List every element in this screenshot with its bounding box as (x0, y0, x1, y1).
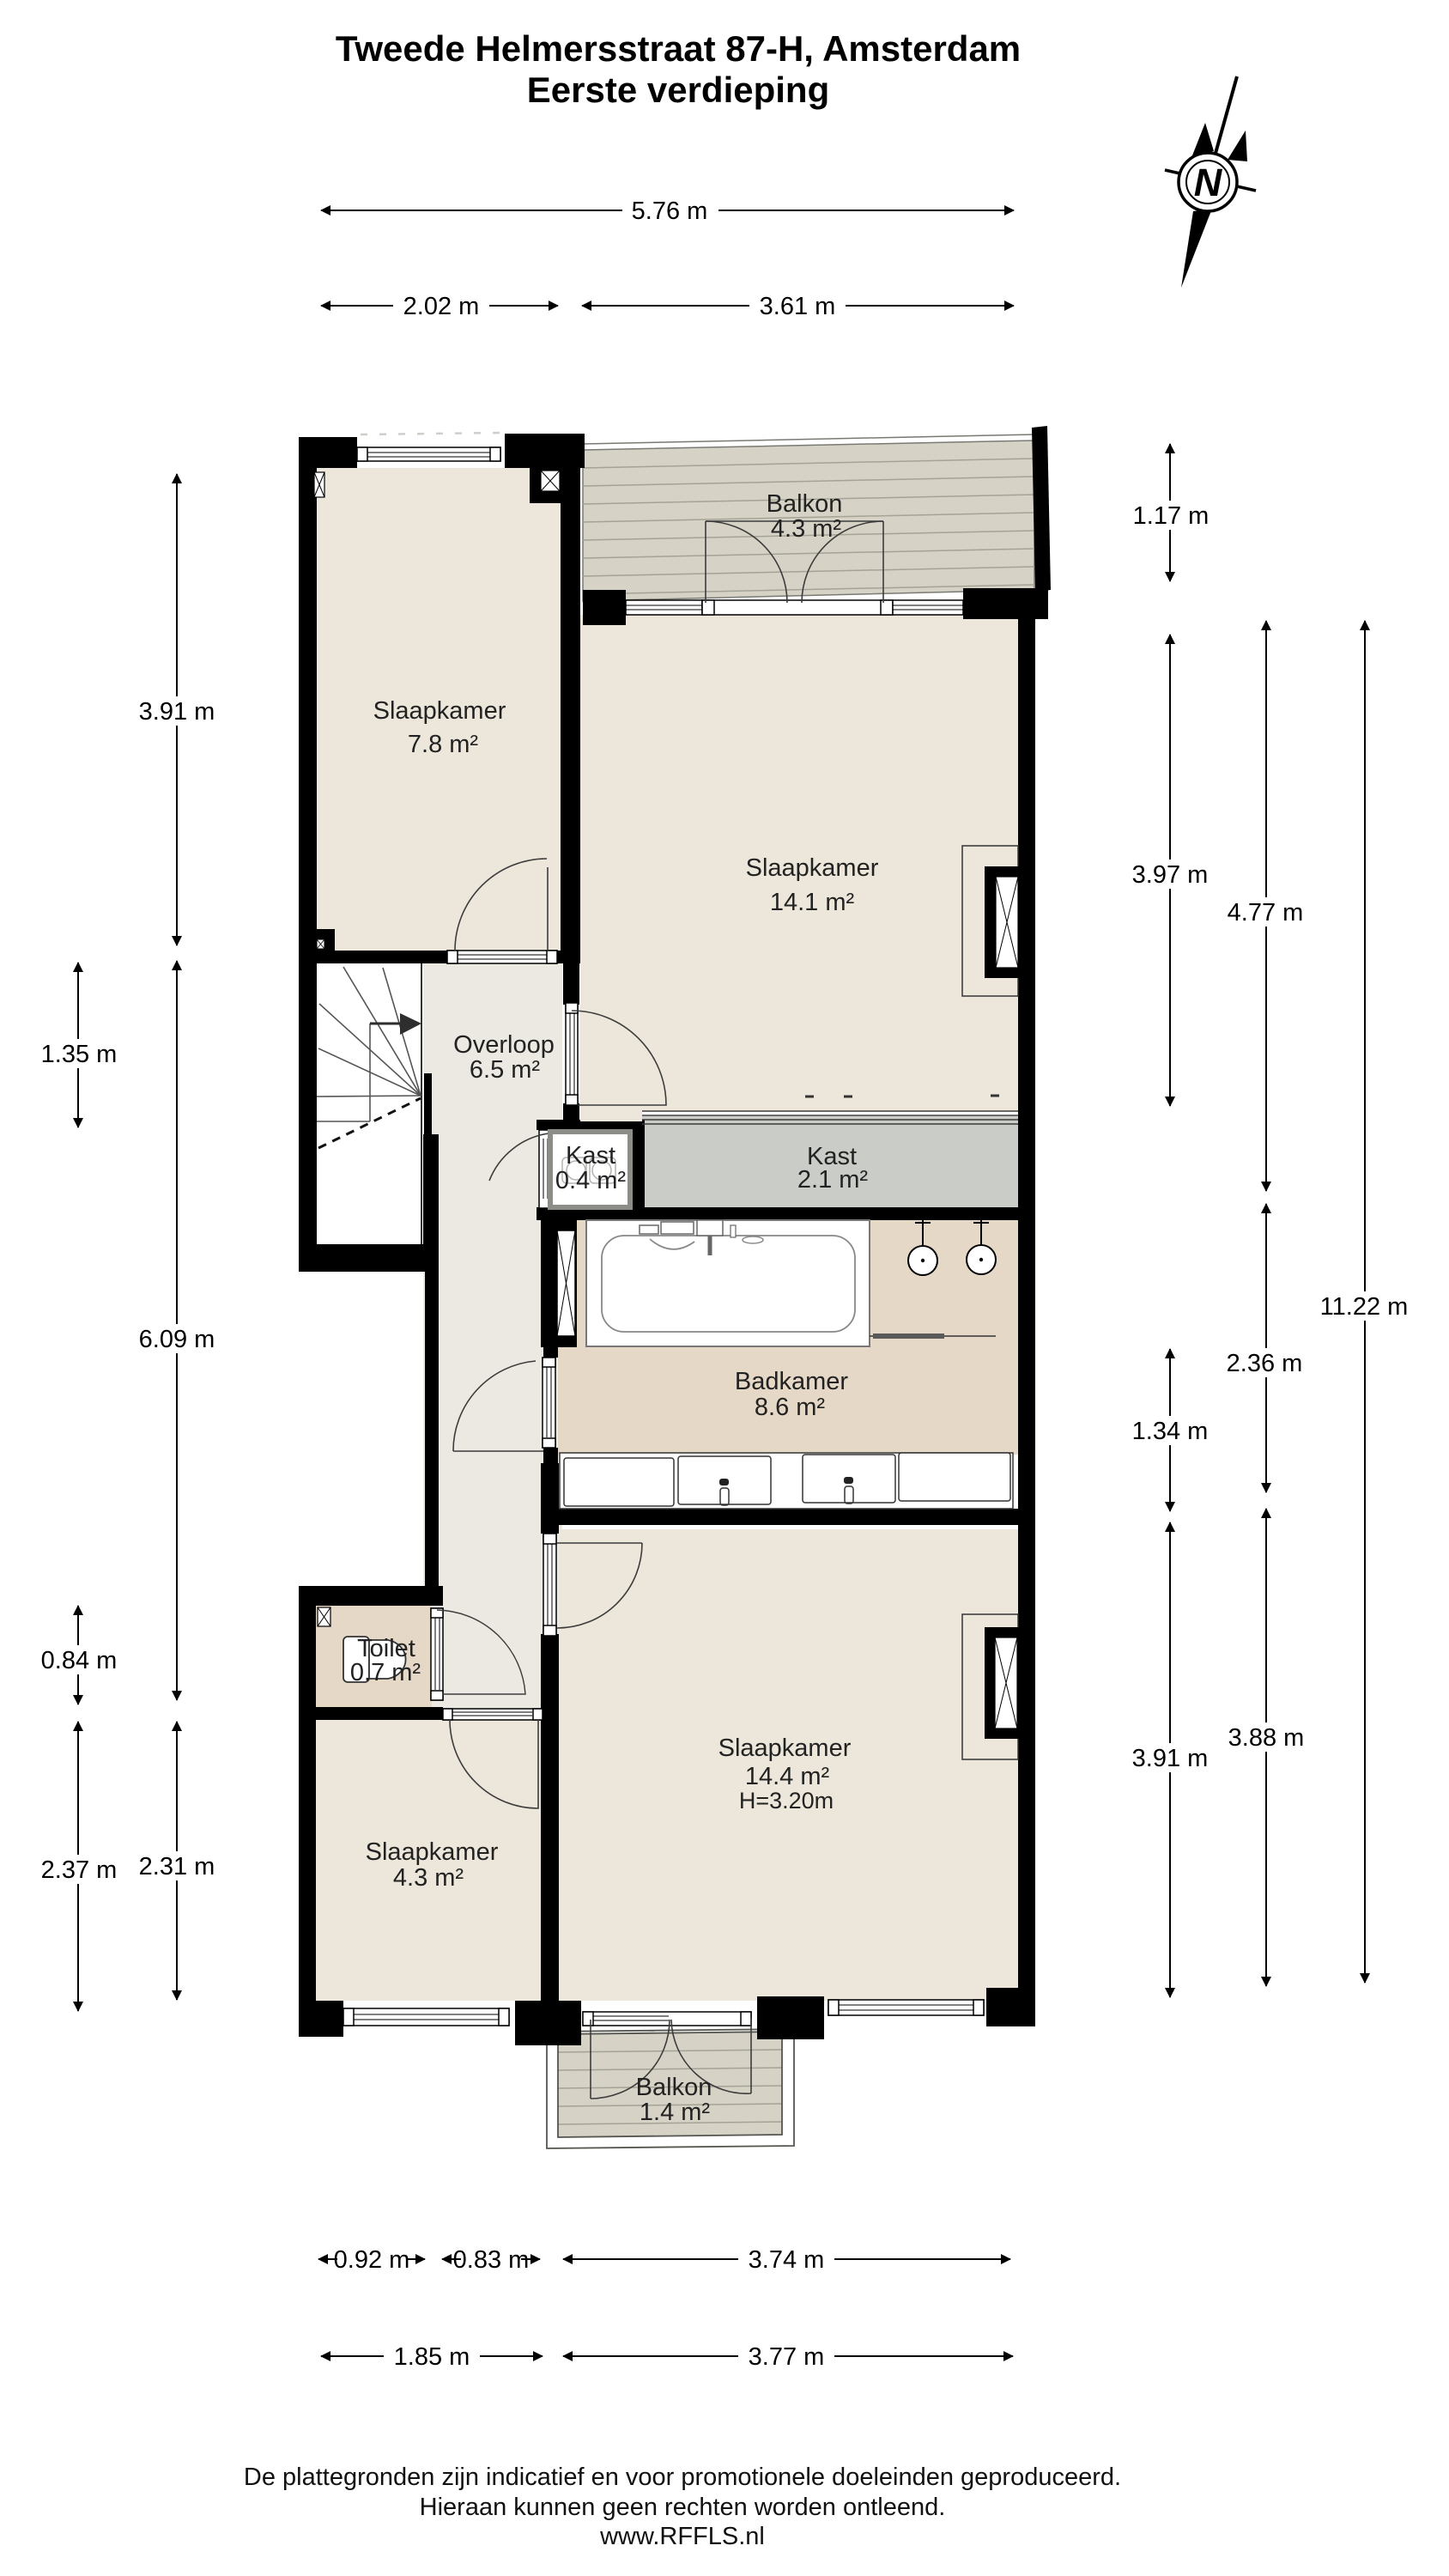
svg-text:8.6 m²: 8.6 m² (755, 1394, 826, 1421)
svg-text:De plattegronden zijn indicati: De plattegronden zijn indicatief en voor… (244, 2464, 1121, 2491)
svg-text:6.5 m²: 6.5 m² (470, 1056, 541, 1084)
svg-text:3.77 m: 3.77 m (749, 2343, 825, 2371)
svg-text:1.85 m: 1.85 m (394, 2343, 470, 2371)
svg-text:2.02 m: 2.02 m (403, 293, 480, 320)
svg-text:N: N (1194, 161, 1223, 204)
svg-text:3.97 m: 3.97 m (1132, 861, 1209, 889)
svg-text:14.1 m²: 14.1 m² (770, 889, 855, 916)
svg-text:1.35 m: 1.35 m (41, 1041, 118, 1068)
svg-text:4.3 m²: 4.3 m² (393, 1864, 464, 1892)
svg-text:5.76 m: 5.76 m (632, 197, 708, 225)
svg-text:Badkamer: Badkamer (735, 1368, 849, 1395)
svg-text:2.31 m: 2.31 m (139, 1853, 215, 1880)
svg-text:Eerste verdieping: Eerste verdieping (527, 70, 829, 110)
svg-text:14.4 m²: 14.4 m² (745, 1763, 830, 1790)
svg-text:Tweede Helmersstraat 87-H, Ams: Tweede Helmersstraat 87-H, Amsterdam (336, 28, 1021, 69)
svg-text:2.37 m: 2.37 m (41, 1856, 118, 1884)
svg-text:3.88 m: 3.88 m (1228, 1724, 1305, 1752)
svg-text:6.09 m: 6.09 m (139, 1326, 215, 1353)
svg-text:Slaapkamer: Slaapkamer (746, 854, 879, 882)
svg-text:Slaapkamer: Slaapkamer (373, 697, 506, 725)
svg-text:3.74 m: 3.74 m (749, 2246, 825, 2274)
svg-text:2.1 m²: 2.1 m² (797, 1166, 869, 1194)
svg-text:H=3.20m: H=3.20m (739, 1788, 834, 1814)
svg-text:Kast: Kast (566, 1142, 615, 1170)
svg-text:Overloop: Overloop (453, 1031, 555, 1059)
svg-text:0.7 m²: 0.7 m² (350, 1659, 421, 1686)
svg-text:Slaapkamer: Slaapkamer (366, 1838, 499, 1866)
svg-text:1.17 m: 1.17 m (1133, 502, 1210, 530)
svg-text:0.83 m: 0.83 m (453, 2246, 530, 2274)
svg-text:Hieraan kunnen geen rechten wo: Hieraan kunnen geen rechten worden ontle… (420, 2494, 946, 2521)
svg-text:Slaapkamer: Slaapkamer (718, 1735, 852, 1762)
svg-text:0.92 m: 0.92 m (334, 2246, 410, 2274)
svg-text:7.8 m²: 7.8 m² (408, 731, 479, 758)
svg-text:3.91 m: 3.91 m (139, 698, 215, 726)
svg-text:1.4 m²: 1.4 m² (640, 2099, 711, 2126)
svg-text:4.77 m: 4.77 m (1228, 899, 1304, 927)
svg-text:www.RFFLS.nl: www.RFFLS.nl (599, 2523, 765, 2550)
svg-text:1.34 m: 1.34 m (1132, 1418, 1209, 1445)
svg-text:3.91 m: 3.91 m (1132, 1745, 1209, 1772)
svg-text:Balkon: Balkon (636, 2074, 712, 2101)
svg-text:11.22 m: 11.22 m (1320, 1293, 1409, 1321)
svg-text:0.4 m²: 0.4 m² (555, 1167, 627, 1194)
svg-text:Balkon: Balkon (767, 490, 843, 518)
svg-text:4.3 m²: 4.3 m² (771, 515, 842, 543)
svg-text:3.61 m: 3.61 m (760, 293, 836, 320)
svg-text:2.36 m: 2.36 m (1227, 1350, 1303, 1377)
svg-text:0.84 m: 0.84 m (41, 1647, 118, 1674)
